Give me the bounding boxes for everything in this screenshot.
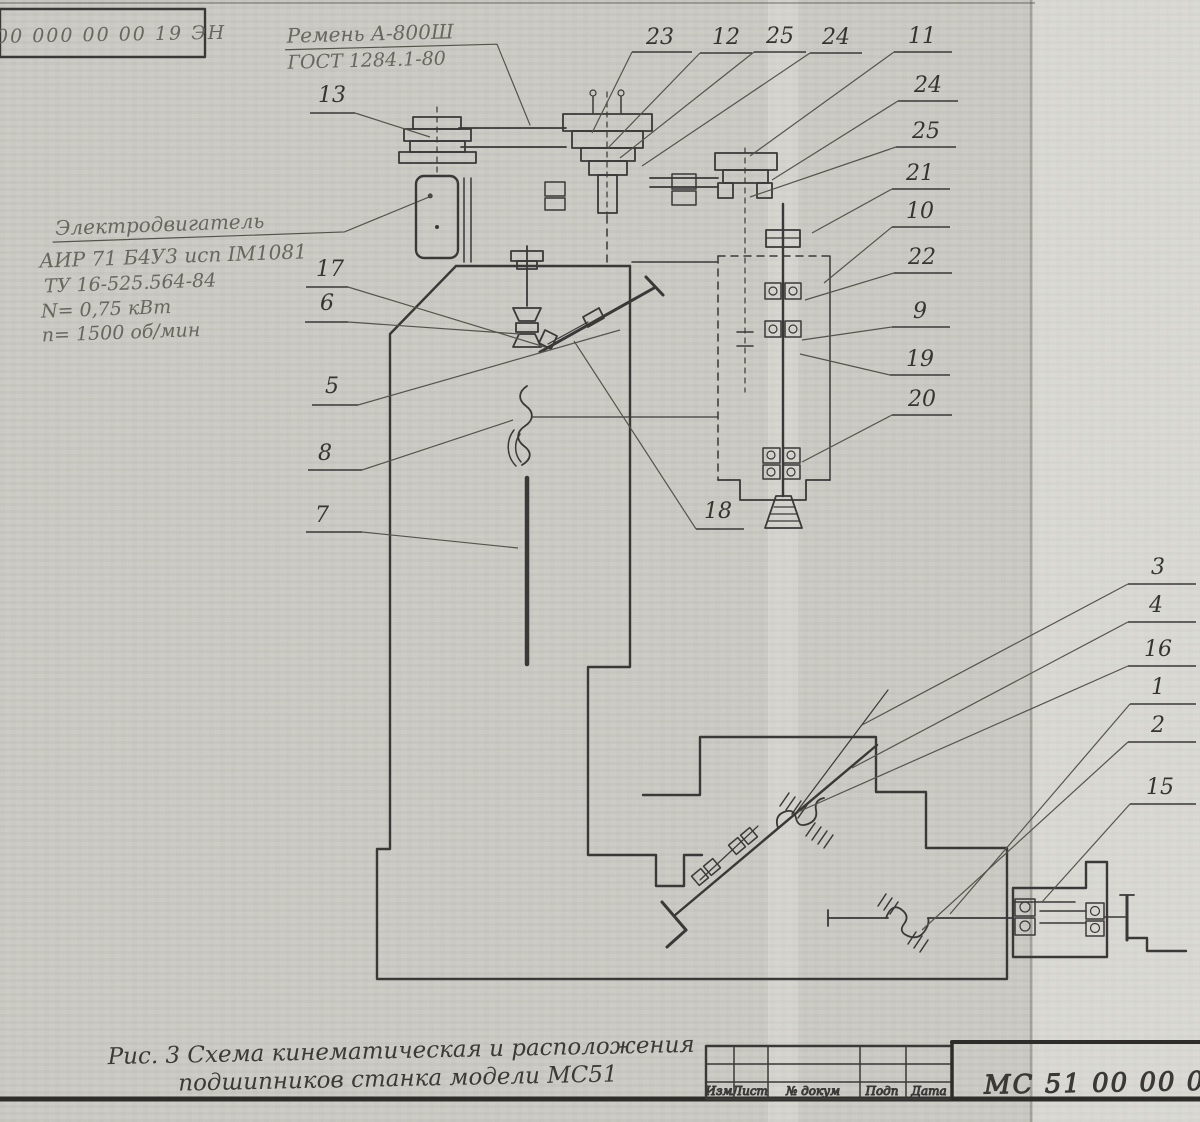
callout-number: 22 bbox=[907, 245, 936, 270]
callout-number: 19 bbox=[906, 347, 934, 372]
callout-number: 23 bbox=[645, 25, 674, 50]
callout-number: 25 bbox=[911, 119, 940, 144]
callout-number: 6 bbox=[320, 291, 334, 316]
callout-number: 18 bbox=[704, 499, 732, 524]
paper-texture bbox=[0, 0, 1200, 1122]
callout-number: 5 bbox=[325, 374, 339, 399]
callout-number: 25 bbox=[765, 24, 794, 49]
callout-number: 20 bbox=[907, 387, 936, 412]
callout-number: 12 bbox=[712, 25, 740, 50]
callout-number: 11 bbox=[908, 24, 936, 49]
title-block-column-5: Дата bbox=[910, 1084, 946, 1098]
belt-label-line2: ГОСТ 1284.1-80 bbox=[286, 48, 446, 74]
callout-number: 24 bbox=[821, 25, 850, 50]
title-block-column-1: Изм bbox=[705, 1084, 733, 1098]
belt-label-line1: Ремень А-800Ш bbox=[285, 19, 455, 47]
callout-number: 16 bbox=[1144, 637, 1172, 662]
callout-number: 8 bbox=[318, 441, 332, 466]
scanned-drawing-page: 00 000 00 00 19 ЭН Ремень А-800Ш ГОСТ 12… bbox=[0, 0, 1200, 1122]
title-block-column-2: Лист bbox=[731, 1084, 768, 1098]
callout-number: 4 bbox=[1148, 593, 1163, 618]
motor-label-power: N= 0,75 кВт bbox=[40, 296, 172, 323]
callout-number: 3 bbox=[1151, 555, 1165, 580]
callout-number: 21 bbox=[905, 161, 934, 186]
callout-number: 10 bbox=[906, 199, 934, 224]
title-block-column-4: Подп bbox=[864, 1084, 898, 1098]
stamp-code: 00 000 00 00 19 ЭН bbox=[0, 22, 226, 48]
title-block-column-3: № докум bbox=[785, 1084, 840, 1098]
callout-number: 1 bbox=[1151, 675, 1165, 700]
callout-number: 2 bbox=[1150, 713, 1165, 738]
callout-number: 17 bbox=[316, 257, 344, 282]
callout-number: 24 bbox=[913, 73, 942, 98]
callout-number: 15 bbox=[1146, 775, 1174, 800]
title-block-columns: ИзмЛист№ докумПодпДата bbox=[705, 1084, 947, 1098]
callout-number: 9 bbox=[913, 299, 927, 324]
engineering-drawing-canvas: 00 000 00 00 19 ЭН Ремень А-800Ш ГОСТ 12… bbox=[0, 0, 1200, 1122]
callout-number: 7 bbox=[315, 503, 329, 528]
callout-number: 13 bbox=[318, 83, 346, 108]
document-number: МС 51 00 00 000 0 bbox=[983, 1066, 1200, 1101]
